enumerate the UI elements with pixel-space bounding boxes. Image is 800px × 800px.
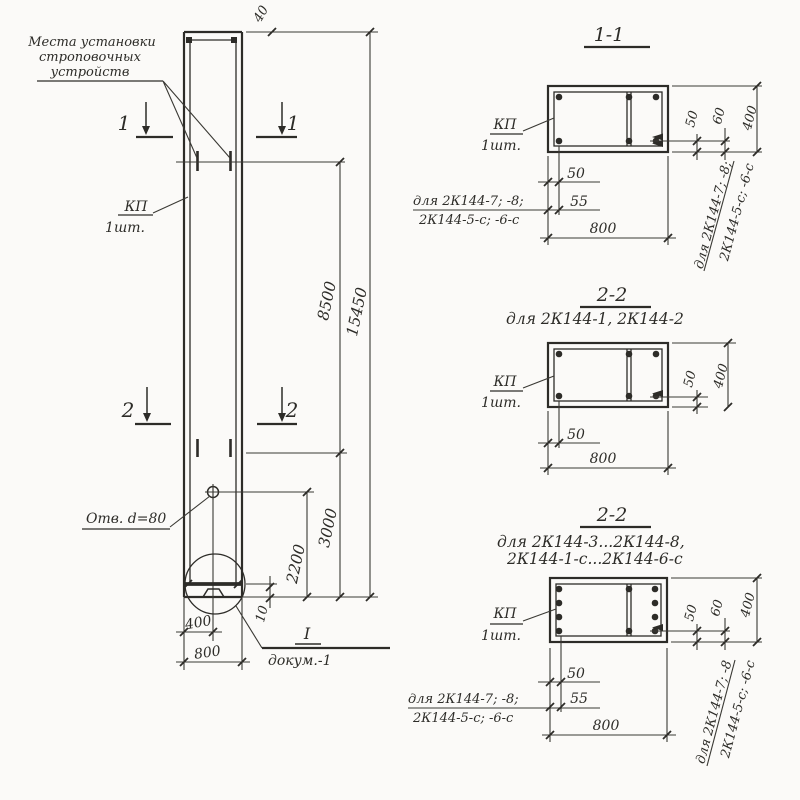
section-2-2b-rebar <box>556 586 659 635</box>
section-marks: 1 1 2 2 <box>118 102 300 424</box>
section-2-2b-dim-50: 50 <box>567 666 585 682</box>
dim-40: 40 <box>250 3 272 26</box>
part-name: КП <box>123 199 148 215</box>
strop-note-line3: устройств <box>50 65 130 80</box>
section-1-1-dim-800: 800 <box>590 221 617 237</box>
elevation-dimensions: 40 15450 8500 3000 2200 10 400 800 <box>176 3 378 670</box>
detail-doc: докум.-1 <box>268 653 331 669</box>
mark-1-right: 1 <box>287 111 300 135</box>
section-2-2a-stirrup <box>554 349 662 401</box>
section-2-2a-part: КП <box>492 374 517 390</box>
strop-marks <box>198 151 231 457</box>
section-2-2b-dim-55: 55 <box>570 691 588 707</box>
section-2-2a-title: 2-2 <box>596 284 628 306</box>
strop-leaders <box>163 81 230 158</box>
section-1-1-stirrup <box>554 92 662 146</box>
section-1-1-dim-r50: 50 <box>683 109 702 129</box>
cage-anchor-left <box>186 37 192 43</box>
section-mark-bars <box>135 137 297 424</box>
section-1-1-note-l2: 2К144-5-с; -6-с <box>418 213 520 228</box>
section-2-2b-title: 2-2 <box>596 504 628 526</box>
section-arrowheads <box>142 126 286 422</box>
dimension-lines <box>176 32 378 670</box>
section-2-2b-subtitle2: 2К144-1-с...2К144-6-с <box>506 550 683 568</box>
section-2-2b-subtitle1: для 2К144-3...2К144-8, <box>497 533 685 551</box>
section-2-2b-stirrup <box>556 584 661 636</box>
section-2-2a-part-leader <box>523 376 554 388</box>
strop-note-line1: Места установки <box>27 35 156 50</box>
dim-15450: 15450 <box>343 286 371 338</box>
section-1-1-dim-50: 50 <box>567 166 585 182</box>
elevation-part-label: КП 1шт. <box>105 197 188 236</box>
section-arrows-stems <box>146 102 282 413</box>
section-2-2a: 2-2 для 2К144-1, 2К144-2 КП 1шт. 50 800 … <box>481 284 736 475</box>
detail-ref: I <box>303 624 311 643</box>
section-2-2b-dim-r50: 50 <box>682 603 701 623</box>
section-2-2b-qty: 1шт. <box>481 628 521 644</box>
section-1-1-part: КП <box>492 117 517 133</box>
section-2-2b-dim-r60: 60 <box>708 598 727 618</box>
section-1-1-outline <box>548 86 668 152</box>
mark-2-left: 2 <box>121 398 135 422</box>
section-2-2a-qty: 1шт. <box>481 395 521 411</box>
strop-note-line2: строповочных <box>39 50 142 65</box>
mark-1-left: 1 <box>118 111 131 135</box>
mark-2-right: 2 <box>285 398 299 422</box>
section-2-2a-dim-r400: 400 <box>711 362 732 391</box>
hole-label: Отв. d=80 <box>86 511 166 527</box>
section-2-2a-dim-lines <box>538 343 736 475</box>
dim-8500: 8500 <box>314 279 340 321</box>
section-2-2b-note-l1: для 2К144-7; -8; <box>408 692 519 707</box>
section-1-1-rebar <box>556 94 660 145</box>
cage-anchor-right <box>231 37 237 43</box>
section-2-2a-ticks <box>544 339 732 472</box>
drawing-canvas: 40 15450 8500 3000 2200 10 400 800 Места… <box>0 0 800 800</box>
dim-400: 400 <box>183 613 213 634</box>
section-1-1-part-leader <box>523 118 554 131</box>
section-2-2b-part: КП <box>492 606 517 622</box>
section-1-1-qty: 1шт. <box>481 138 521 154</box>
dim-10: 10 <box>253 604 272 624</box>
dim-2200: 2200 <box>283 542 309 585</box>
section-2-2a-rebar <box>556 351 660 400</box>
section-1-1-dim-r60: 60 <box>710 106 729 126</box>
dim-3000: 3000 <box>315 506 341 548</box>
section-2-2b-dim-800: 800 <box>593 718 620 734</box>
section-2-2b-dim-r400: 400 <box>738 591 759 620</box>
section-1-1-title: 1-1 <box>594 24 625 46</box>
engineering-drawing: 40 15450 8500 3000 2200 10 400 800 Места… <box>0 0 800 800</box>
section-1-1-dim-r400: 400 <box>740 104 761 133</box>
section-2-2a-dim-800: 800 <box>590 451 617 467</box>
section-1-1-dim-55: 55 <box>570 194 588 210</box>
section-2-2b: 2-2 для 2К144-3...2К144-8, 2К144-1-с...2… <box>408 504 762 766</box>
hole-note: Отв. d=80 <box>82 496 210 529</box>
part-leader <box>153 197 188 213</box>
part-qty: 1шт. <box>105 220 145 236</box>
section-1-1: 1-1 КП 1шт. 50 55 800 для 2К144-7; -8; 2… <box>413 24 762 271</box>
section-2-2a-dim-r50: 50 <box>681 369 700 389</box>
section-2-2a-subtitle: для 2К144-1, 2К144-2 <box>506 310 684 328</box>
column-elevation <box>184 32 245 641</box>
section-2-2b-note-l2: 2К144-5-с; -6-с <box>412 711 514 726</box>
dimension-ticks <box>180 28 374 666</box>
section-1-1-note-l1: для 2К144-7; -8; <box>413 194 524 209</box>
section-2-2a-dim-50: 50 <box>567 427 585 443</box>
section-2-2b-outline <box>550 578 667 642</box>
strop-note: Места установки строповочных устройств <box>27 35 230 158</box>
dim-800: 800 <box>193 643 222 663</box>
